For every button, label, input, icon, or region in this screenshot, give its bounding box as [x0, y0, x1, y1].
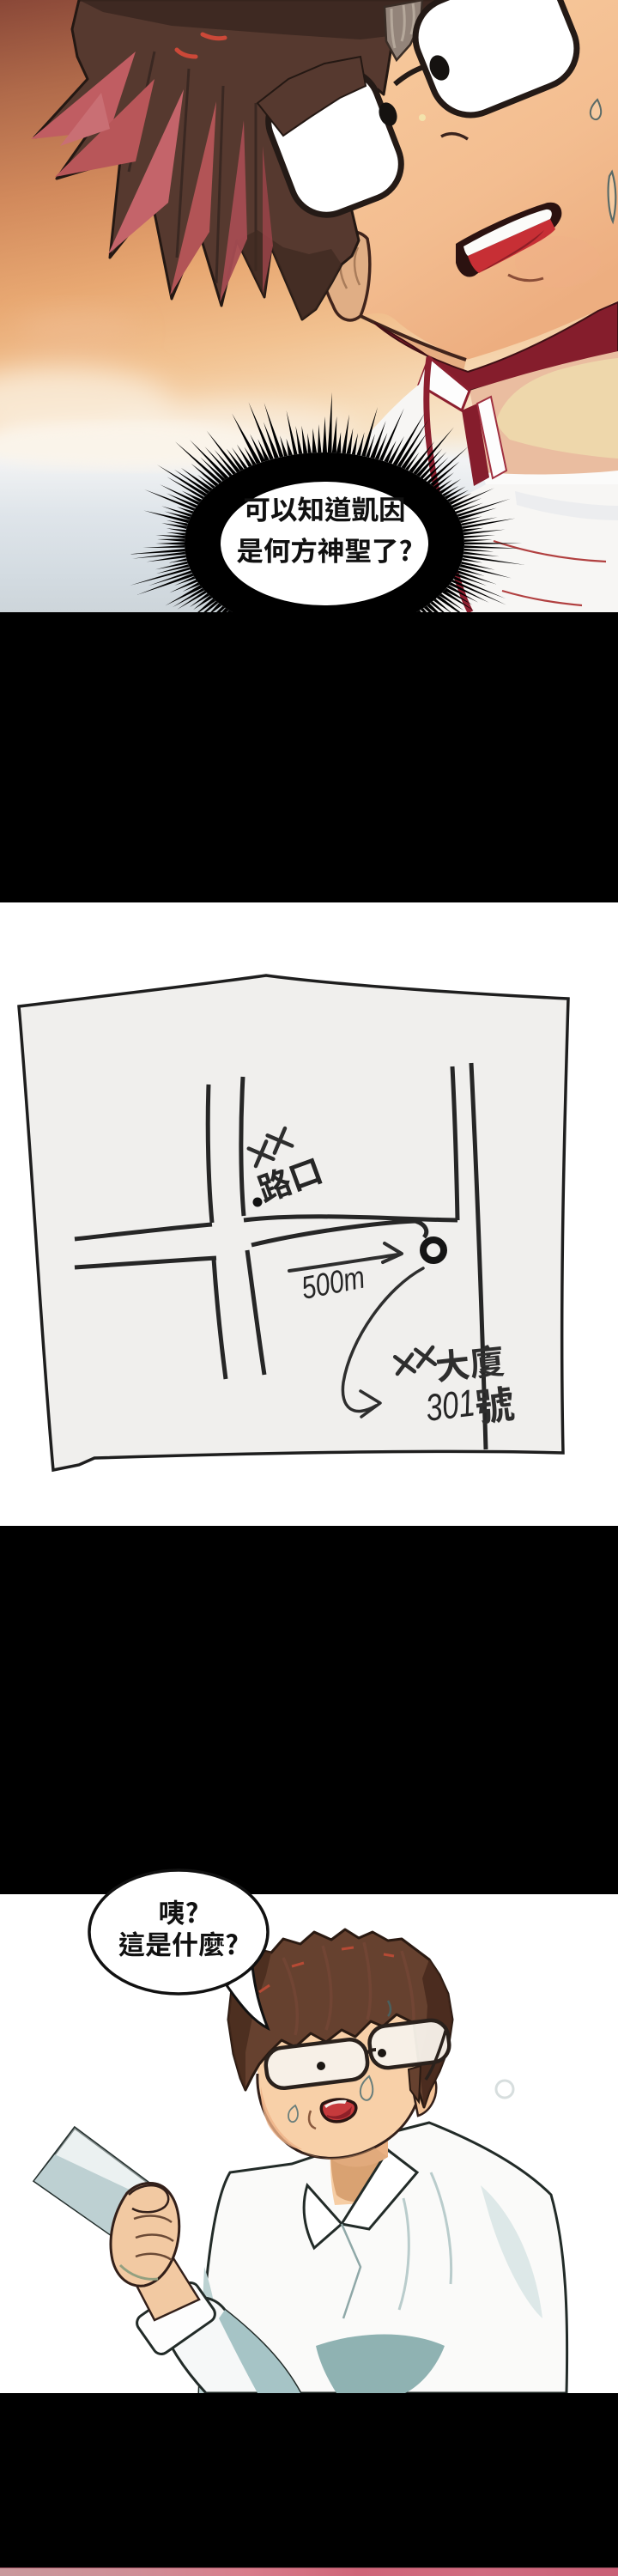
svg-text:301: 301 — [423, 1382, 477, 1430]
